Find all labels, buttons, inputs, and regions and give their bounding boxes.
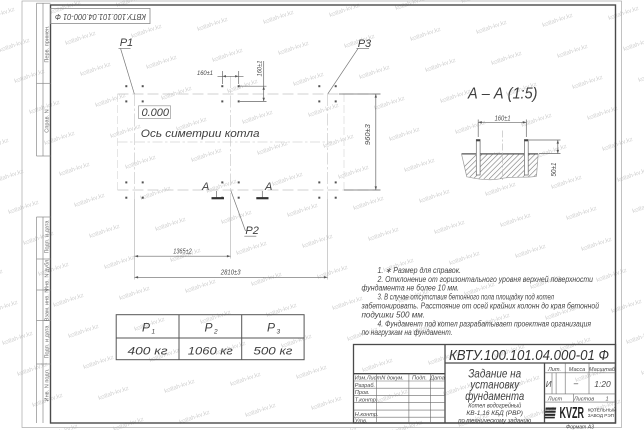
svg-text:Лист: Лист bbox=[547, 397, 563, 403]
svg-text:1060 кг: 1060 кг bbox=[188, 345, 234, 357]
svg-text:КВТУ.100.101.04.000-01 Ф: КВТУ.100.101.04.000-01 Ф bbox=[55, 12, 146, 22]
svg-text:фундамента: фундамента bbox=[465, 389, 524, 403]
svg-text:Утв.: Утв. bbox=[354, 419, 368, 425]
svg-text:160±1: 160±1 bbox=[257, 60, 264, 76]
svg-text:Разраб.: Разраб. bbox=[355, 383, 375, 389]
svg-text:Дата: Дата bbox=[429, 376, 445, 382]
svg-text:1: 1 bbox=[152, 329, 156, 336]
svg-text:Лит.: Лит. bbox=[547, 367, 561, 373]
svg-text:Инв. N подл.: Инв. N подл. bbox=[45, 368, 51, 401]
svg-text:Подп. и дата: Подп. и дата bbox=[45, 325, 51, 359]
svg-text:Подп. и дата: Подп. и дата bbox=[45, 220, 51, 254]
svg-text:ЗАВОД РЭП: ЗАВОД РЭП bbox=[588, 413, 614, 418]
svg-text:KVZR: KVZR bbox=[560, 405, 585, 422]
svg-text:фундамента не более 10 мм.: фундамента не более 10 мм. bbox=[362, 284, 460, 293]
svg-text:2. Отклонение от горизонтально: 2. Отклонение от горизонтального уровня … bbox=[377, 275, 594, 284]
svg-text:Изм.Лист: Изм.Лист bbox=[355, 376, 382, 382]
svg-text:подушки 500 мм.: подушки 500 мм. bbox=[362, 310, 426, 319]
svg-text:400 кг: 400 кг bbox=[128, 345, 169, 357]
svg-text:Масса: Масса bbox=[569, 367, 586, 373]
svg-text:по нагрузкам на фундамент.: по нагрузкам на фундамент. bbox=[362, 328, 453, 337]
svg-text:–: – bbox=[573, 379, 579, 388]
svg-text:Подп.: Подп. bbox=[412, 376, 427, 382]
svg-text:4. Фундамент под котел разраба: 4. Фундамент под котел разрабатывает про… bbox=[378, 319, 592, 328]
svg-text:Инв. N дубл.: Инв. N дубл. bbox=[45, 258, 51, 291]
svg-text:Масштаб: Масштаб bbox=[589, 367, 616, 373]
svg-text:забетонировать. Расстояние от: забетонировать. Расстояние от осей крайн… bbox=[361, 302, 600, 311]
svg-text:3: 3 bbox=[277, 329, 281, 336]
svg-text:2810±3: 2810±3 bbox=[220, 270, 241, 277]
svg-text:Листов: Листов bbox=[573, 397, 594, 403]
svg-text:КВТУ.100.101.04.000-01 Ф: КВТУ.100.101.04.000-01 Ф bbox=[449, 348, 609, 364]
svg-text:Н.контр.: Н.контр. bbox=[355, 412, 379, 418]
svg-text:И: И bbox=[546, 380, 552, 389]
svg-text:Котел водогрейный: Котел водогрейный bbox=[468, 403, 522, 410]
svg-text:Взам. инв. N: Взам. инв. N bbox=[45, 289, 51, 322]
svg-text:3. В случае отсутствия бетонно: 3. В случае отсутствия бетонного пола пл… bbox=[378, 293, 555, 302]
svg-text:Т.контр.: Т.контр. bbox=[355, 397, 378, 403]
svg-text:КВ-1,16 КБД (РВР): КВ-1,16 КБД (РВР) bbox=[466, 410, 523, 417]
svg-text:1: 1 bbox=[605, 397, 608, 403]
svg-text:P: P bbox=[205, 321, 213, 335]
svg-text:N докум.: N докум. bbox=[381, 376, 404, 382]
svg-text:960±3: 960±3 bbox=[365, 124, 372, 145]
svg-text:Формат А3: Формат А3 bbox=[566, 425, 594, 430]
svg-text:A: A bbox=[264, 181, 272, 193]
svg-text:50±1: 50±1 bbox=[551, 162, 558, 176]
svg-text:P3: P3 bbox=[358, 38, 372, 50]
svg-text:КОТЕЛЬНЫЙ: КОТЕЛЬНЫЙ bbox=[588, 406, 617, 413]
svg-text:по техническому заданию: по техническому заданию bbox=[458, 417, 531, 424]
svg-text:P: P bbox=[142, 321, 150, 335]
svg-text:А – А (1:5): А – А (1:5) bbox=[467, 85, 537, 102]
svg-text:P: P bbox=[267, 321, 275, 335]
svg-text:1. ∗ Размер для справок.: 1. ∗ Размер для справок. bbox=[378, 266, 462, 275]
svg-text:Пров.: Пров. bbox=[355, 390, 370, 396]
svg-text:Перв. примен.: Перв. примен. bbox=[45, 25, 51, 63]
svg-text:500 кг: 500 кг bbox=[253, 345, 293, 357]
svg-text:2: 2 bbox=[213, 329, 218, 336]
svg-text:Справ. N: Справ. N bbox=[45, 109, 51, 132]
svg-text:160±1: 160±1 bbox=[495, 115, 511, 122]
svg-text:Ось симетрии котла: Ось симетрии котла bbox=[141, 128, 260, 140]
svg-text:0.000: 0.000 bbox=[142, 107, 170, 119]
svg-text:1:20: 1:20 bbox=[594, 379, 611, 389]
svg-text:P1: P1 bbox=[120, 37, 133, 49]
svg-text:P2: P2 bbox=[245, 225, 258, 237]
svg-text:160±1: 160±1 bbox=[197, 70, 213, 77]
svg-text:1365±2: 1365±2 bbox=[173, 249, 192, 256]
svg-text:A: A bbox=[201, 181, 209, 193]
